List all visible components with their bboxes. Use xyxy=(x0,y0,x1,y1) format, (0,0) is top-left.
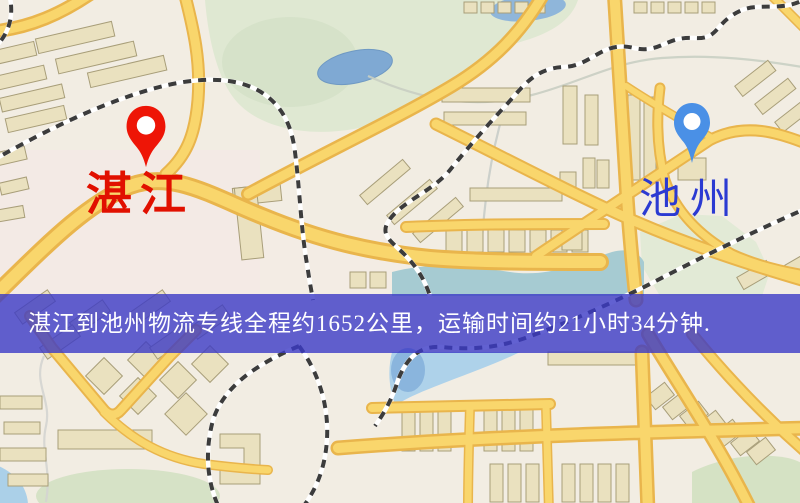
destination-pin-icon xyxy=(670,101,714,171)
origin-pin-icon xyxy=(121,103,171,173)
destination-pin[interactable] xyxy=(670,101,714,171)
destination-label: 池州 xyxy=(639,179,741,221)
route-info-banner: 湛江到池州物流专线全程约1652公里，运输时间约21小时34分钟. xyxy=(0,294,800,353)
origin-pin[interactable] xyxy=(121,103,171,173)
map-canvas: 湛江 池州 湛江到池州物流专线全程约1652公里，运输时间约21小时34分钟. xyxy=(0,0,800,503)
map-background xyxy=(0,0,800,503)
route-info-text: 湛江到池州物流专线全程约1652公里，运输时间约21小时34分钟. xyxy=(28,311,711,336)
origin-label: 湛江 xyxy=(86,172,194,218)
